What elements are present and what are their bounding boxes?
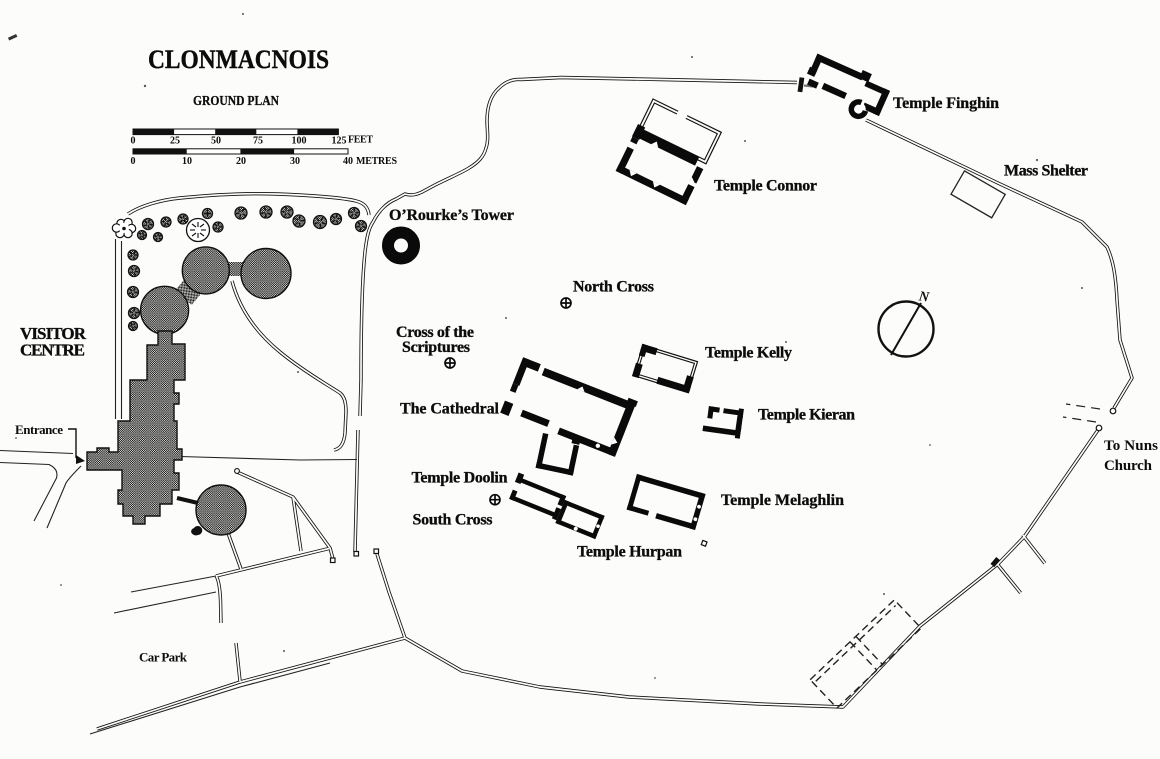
svg-text:25: 25 [170, 136, 180, 147]
svg-text:100: 100 [292, 136, 307, 147]
svg-text:Temple Doolin: Temple Doolin [412, 470, 508, 487]
svg-text:CLONMACNOIS: CLONMACNOIS [148, 45, 329, 74]
svg-text:Church: Church [1104, 458, 1153, 474]
svg-text:GROUND PLAN: GROUND PLAN [193, 93, 279, 108]
svg-text:Temple Melaghlin: Temple Melaghlin [721, 492, 844, 509]
svg-text:Temple Kelly: Temple Kelly [705, 345, 792, 362]
svg-text:South Cross: South Cross [413, 512, 493, 529]
svg-text:0: 0 [131, 156, 136, 167]
svg-text:Temple Finghin: Temple Finghin [893, 95, 999, 112]
svg-text:125: 125 [332, 136, 347, 147]
svg-text:Mass Shelter: Mass Shelter [1004, 163, 1088, 180]
svg-text:Temple Connor: Temple Connor [714, 178, 817, 195]
svg-text:FEET: FEET [348, 135, 373, 146]
svg-text:O’Rourke’s Tower: O’Rourke’s Tower [389, 207, 514, 224]
svg-text:30: 30 [290, 156, 300, 167]
svg-text:40: 40 [343, 156, 353, 167]
svg-text:20: 20 [236, 156, 246, 167]
svg-text:Temple Hurpan: Temple Hurpan [577, 544, 682, 561]
svg-text:To Nuns: To Nuns [1104, 438, 1158, 454]
svg-text:Entrance: Entrance [15, 422, 63, 437]
svg-text:METRES: METRES [356, 156, 397, 167]
svg-text:Scriptures: Scriptures [402, 339, 470, 356]
svg-text:75: 75 [253, 136, 263, 147]
svg-text:0: 0 [131, 136, 136, 147]
svg-text:50: 50 [211, 136, 221, 147]
svg-text:The Cathedral: The Cathedral [400, 401, 500, 418]
svg-text:North Cross: North Cross [573, 279, 654, 296]
svg-text:CENTRE: CENTRE [20, 341, 85, 360]
svg-text:Car Park: Car Park [139, 650, 188, 665]
svg-text:Temple Kieran: Temple Kieran [758, 407, 855, 424]
svg-text:10: 10 [182, 156, 192, 167]
